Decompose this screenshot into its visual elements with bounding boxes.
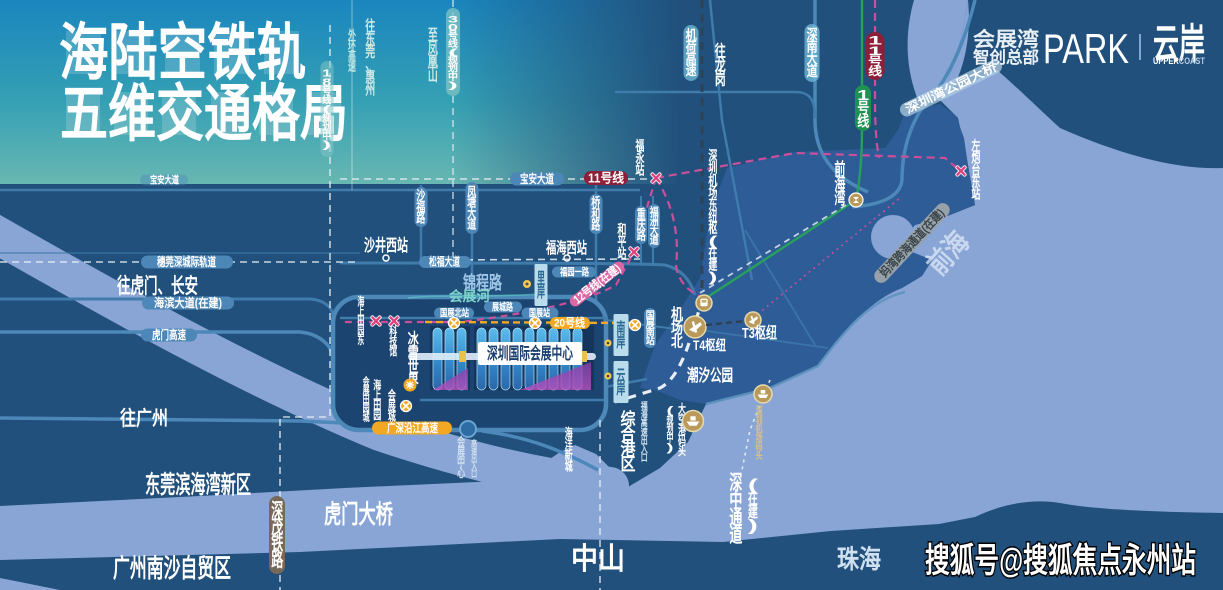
- svg-text:虎门大桥: 虎门大桥: [324, 500, 393, 529]
- svg-text:): ): [748, 517, 758, 534]
- svg-text:宝安大道: 宝安大道: [150, 173, 179, 186]
- svg-text:海滨大道(在建): 海滨大道(在建): [154, 295, 222, 310]
- svg-text:头: 头: [756, 449, 763, 462]
- svg-text:站: 站: [617, 246, 626, 262]
- svg-text:口: 口: [471, 469, 477, 479]
- svg-text:20号线: 20号线: [554, 316, 586, 330]
- svg-text:T4枢纽: T4枢纽: [693, 337, 726, 353]
- svg-text:站: 站: [635, 162, 644, 178]
- svg-text:): ): [322, 140, 331, 151]
- svg-text:路: 路: [591, 218, 600, 233]
- svg-text:东: 东: [357, 333, 364, 347]
- svg-text:州: 州: [365, 82, 376, 99]
- svg-text:往广州: 往广州: [120, 407, 168, 430]
- svg-text:搜狐号@搜狐焦点永州站: 搜狐号@搜狐焦点永州站: [925, 542, 1196, 580]
- svg-text:宝安大道: 宝安大道: [520, 171, 555, 186]
- svg-text:东莞滨海湾新区: 东莞滨海湾新区: [145, 471, 251, 499]
- svg-text:路: 路: [637, 228, 647, 243]
- svg-text:): ): [667, 442, 674, 454]
- svg-text:道: 道: [807, 63, 818, 79]
- svg-text:站: 站: [646, 334, 655, 347]
- svg-text:路: 路: [271, 548, 283, 571]
- svg-text:珠海: 珠海: [837, 545, 881, 574]
- svg-text:速: 速: [686, 62, 697, 78]
- svg-text:福海西站: 福海西站: [545, 239, 587, 257]
- svg-text:): ): [708, 269, 717, 285]
- svg-text:): ): [448, 80, 458, 91]
- svg-text:道: 道: [729, 523, 743, 547]
- svg-text:道: 道: [467, 217, 476, 232]
- svg-text:智创总部: 智创总部: [973, 47, 1039, 67]
- svg-text:城: 城: [363, 411, 370, 424]
- svg-text:PARK: PARK: [1043, 25, 1129, 72]
- svg-text:海陆空铁轨: 海陆空铁轨: [59, 19, 306, 88]
- svg-text:往虎门、长安: 往虎门、长安: [117, 273, 198, 298]
- svg-text:心: 心: [457, 466, 465, 480]
- svg-text:园: 园: [373, 408, 381, 422]
- svg-text:潮汐公园: 潮汐公园: [687, 365, 733, 385]
- svg-text:站: 站: [971, 186, 980, 202]
- svg-text:湾: 湾: [834, 188, 845, 208]
- svg-text:国展站: 国展站: [529, 306, 550, 319]
- svg-text:道: 道: [650, 233, 659, 246]
- svg-text:会展河: 会展河: [449, 288, 490, 304]
- svg-text:岸: 岸: [616, 333, 625, 351]
- svg-text:区: 区: [621, 454, 636, 474]
- svg-text:11号线: 11号线: [588, 169, 624, 185]
- svg-text:T3枢纽: T3枢纽: [742, 324, 777, 342]
- svg-text:中山: 中山: [571, 542, 625, 576]
- svg-text:岗: 岗: [715, 69, 726, 88]
- svg-text:城: 城: [565, 459, 573, 474]
- svg-text:北: 北: [671, 332, 683, 350]
- svg-text:岸: 岸: [537, 283, 545, 301]
- svg-text:广州南沙自贸区: 广州南沙自贸区: [113, 553, 231, 583]
- svg-text:广深沿江高速: 广深沿江高速: [387, 420, 439, 435]
- svg-text:福园一路: 福园一路: [559, 265, 589, 278]
- svg-text:速: 速: [348, 59, 357, 74]
- svg-text:馆: 馆: [389, 344, 397, 358]
- svg-text:深圳国际会展中心: 深圳国际会展中心: [487, 343, 573, 363]
- svg-text:穗莞深城际轨道: 穗莞深城际轨道: [157, 254, 217, 269]
- svg-text:五维交通格局: 五维交通格局: [60, 80, 348, 149]
- svg-text:口: 口: [641, 453, 648, 464]
- svg-text:松福大道: 松福大道: [429, 255, 460, 269]
- svg-text:线: 线: [857, 112, 869, 130]
- svg-text:虎门高速: 虎门高速: [152, 327, 187, 342]
- svg-text:展城路: 展城路: [492, 300, 513, 313]
- svg-text:UPPERCOAST: UPPERCOAST: [1153, 56, 1205, 66]
- svg-text:沙井西站: 沙井西站: [364, 235, 408, 255]
- svg-text:山: 山: [428, 66, 438, 84]
- svg-text:岸: 岸: [616, 380, 625, 398]
- svg-text:头: 头: [678, 443, 686, 458]
- svg-text:线: 线: [868, 64, 882, 78]
- svg-text:路: 路: [416, 211, 425, 226]
